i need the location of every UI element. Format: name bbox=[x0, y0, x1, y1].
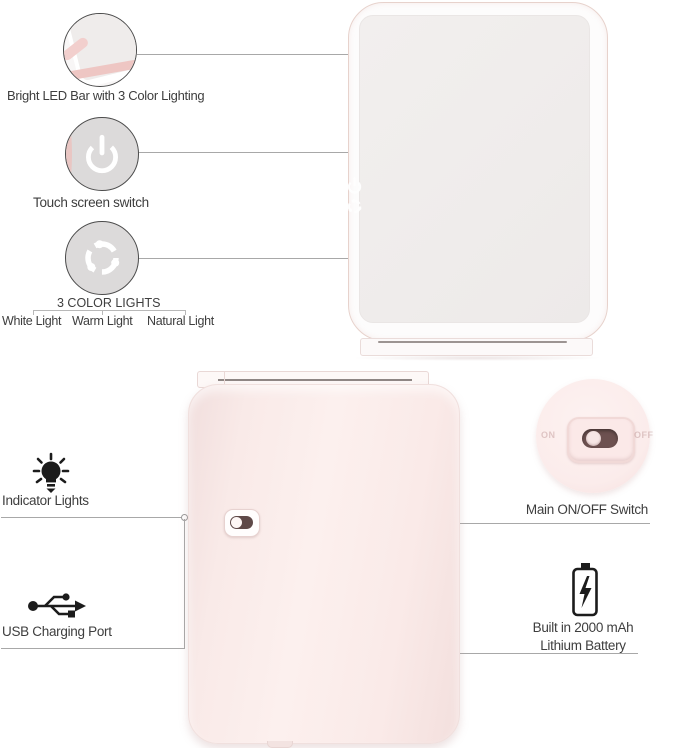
device-back-view bbox=[188, 384, 460, 744]
usb-port-label: USB Charging Port bbox=[2, 624, 112, 639]
battery-label-line1: Built in 2000 mAh bbox=[508, 620, 658, 635]
led-bar-label: Bright LED Bar with 3 Color Lighting bbox=[7, 88, 204, 103]
mirror-led-screen bbox=[359, 15, 590, 323]
connector-usb bbox=[1, 648, 185, 649]
bracket-color-lights bbox=[33, 310, 186, 311]
switch-on-label: ON bbox=[541, 430, 556, 440]
power-icon[interactable] bbox=[345, 176, 364, 195]
power-icon bbox=[79, 131, 125, 177]
warm-light-label: Warm Light bbox=[72, 314, 132, 328]
white-light-label: White Light bbox=[2, 314, 61, 328]
usb-port[interactable] bbox=[267, 741, 293, 748]
switch-magnified-knob bbox=[586, 431, 601, 446]
indicator-lights-label: Indicator Lights bbox=[2, 493, 89, 508]
main-power-switch-knob[interactable] bbox=[231, 517, 242, 528]
color-lights-icon bbox=[78, 234, 126, 282]
connector-left-vertical bbox=[184, 519, 185, 648]
folded-stand-slot bbox=[218, 379, 412, 381]
main-switch-label: Main ON/OFF Switch bbox=[500, 502, 648, 517]
touch-switch-label: Touch screen switch bbox=[33, 195, 149, 210]
color-lights-icon[interactable] bbox=[345, 197, 364, 216]
product-feature-diagram: ON OFF bbox=[0, 0, 679, 748]
mirror-stand-slot bbox=[378, 341, 567, 343]
frame-edge-highlight bbox=[66, 126, 72, 182]
touch-switch-callout-circle bbox=[65, 117, 139, 191]
connector-indicator bbox=[1, 517, 183, 518]
mirror-stand-shadow bbox=[352, 355, 602, 361]
natural-light-label: Natural Light bbox=[147, 314, 214, 328]
connector-color-lights bbox=[137, 258, 357, 259]
led-bar-callout-circle bbox=[63, 13, 137, 87]
color-lights-callout-circle bbox=[65, 221, 139, 295]
color-lights-title: 3 COLOR LIGHTS bbox=[57, 296, 161, 310]
connector-touch-switch bbox=[137, 152, 357, 153]
battery-icon bbox=[570, 561, 600, 624]
switch-off-label: OFF bbox=[634, 430, 654, 440]
battery-label-line2: Lithium Battery bbox=[508, 638, 658, 653]
connector-led-bar bbox=[137, 54, 349, 55]
